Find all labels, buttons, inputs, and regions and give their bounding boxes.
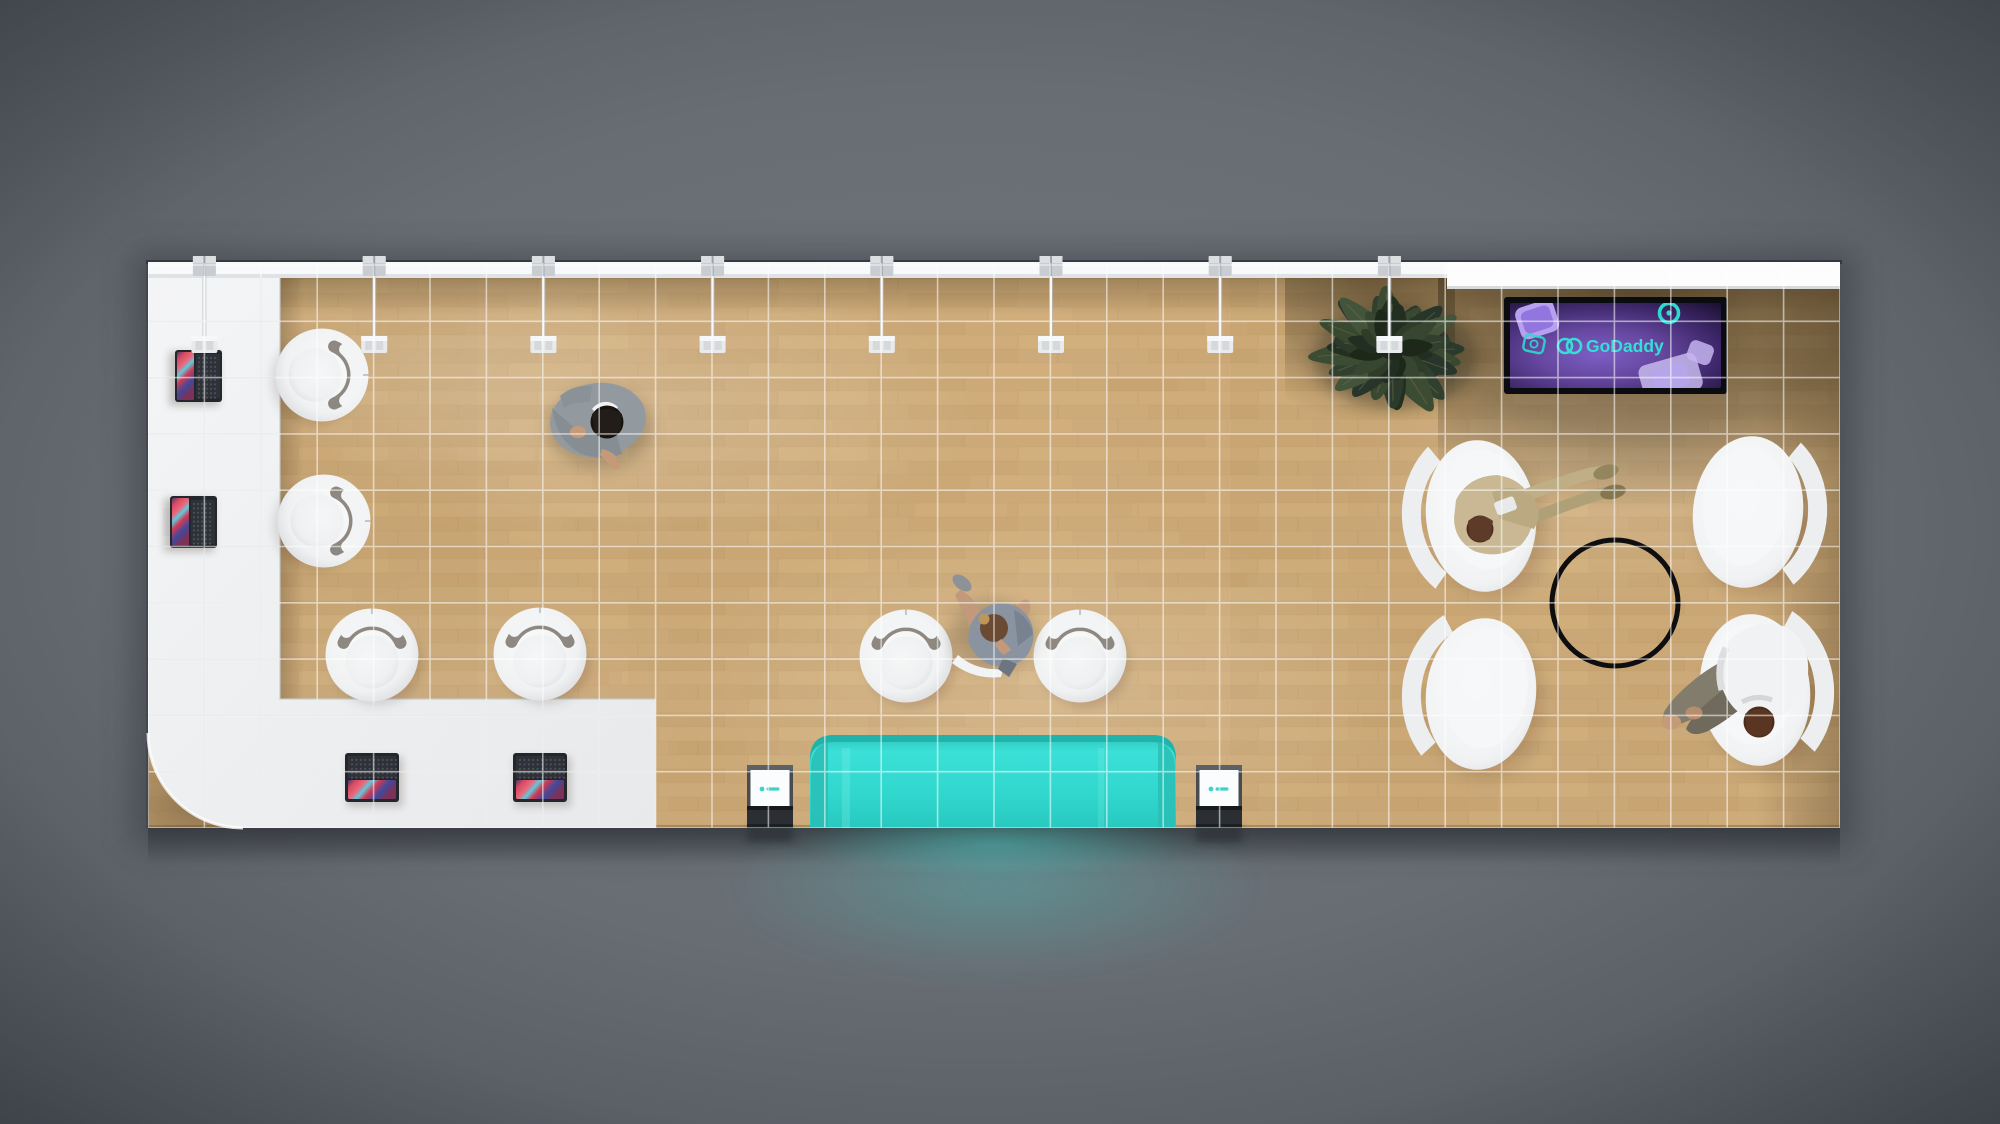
svg-text:GoDaddy: GoDaddy: [1586, 336, 1664, 356]
